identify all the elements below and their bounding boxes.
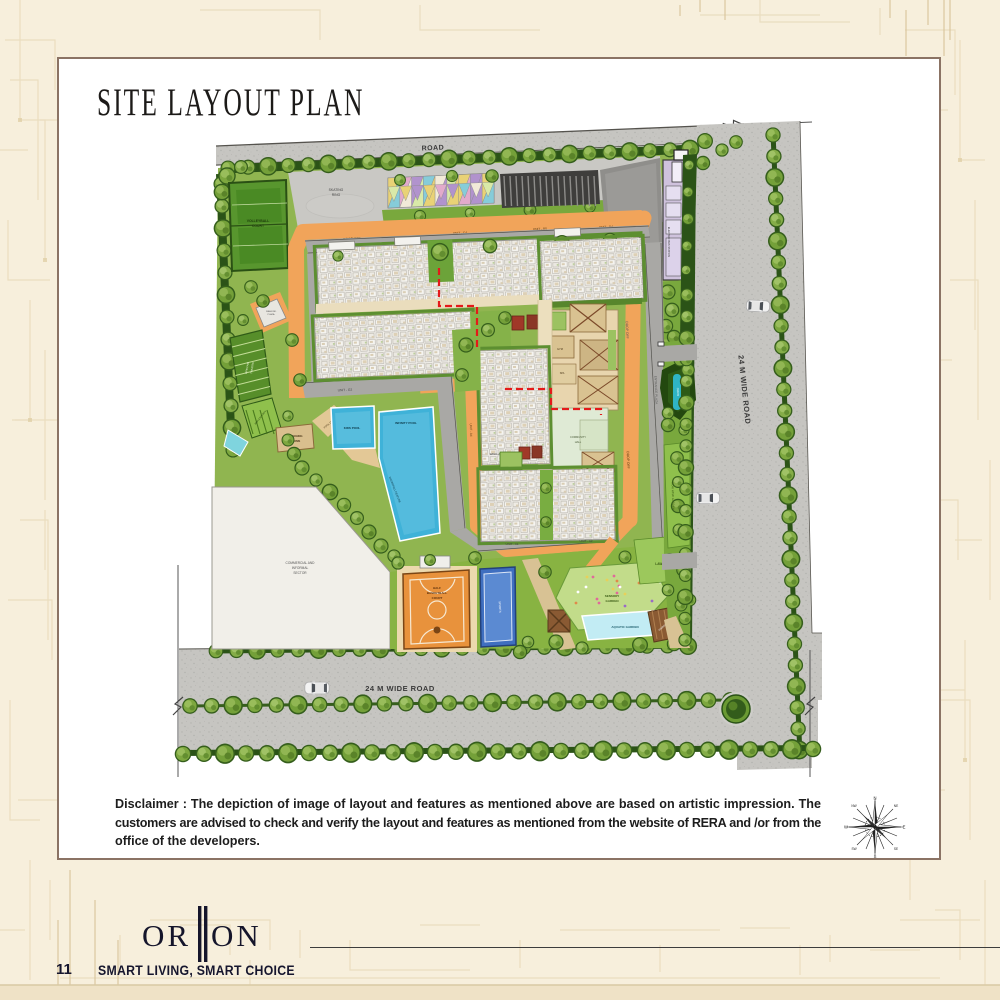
svg-text:KIDS POOL: KIDS POOL (344, 426, 361, 430)
svg-text:RING: RING (332, 193, 341, 197)
svg-text:HALF: HALF (433, 586, 441, 590)
svg-text:SPA: SPA (560, 372, 565, 375)
svg-text:PLAZA: PLAZA (268, 313, 275, 316)
svg-text:WING-A: WING-A (490, 452, 501, 456)
svg-text:DIAMOND: DIAMOND (266, 310, 277, 313)
svg-text:COMMERCIAL AND: COMMERCIAL AND (286, 561, 316, 565)
svg-text:NW: NW (851, 804, 856, 808)
svg-text:SPORTS: SPORTS (498, 601, 502, 613)
svg-text:ELECTRIC BUS STATION: ELECTRIC BUS STATION (667, 227, 671, 258)
svg-text:UNIT - A4: UNIT - A4 (469, 423, 473, 437)
svg-text:NE: NE (894, 804, 898, 808)
svg-text:AQUATIC GARDEN: AQUATIC GARDEN (611, 625, 638, 629)
svg-text:COMMUNITY: COMMUNITY (570, 435, 586, 439)
svg-text:SW: SW (851, 847, 856, 851)
svg-text:DROP OFF: DROP OFF (626, 451, 631, 469)
svg-text:SENSORY: SENSORY (605, 594, 620, 598)
svg-text:COURT: COURT (432, 596, 443, 600)
svg-text:HALL: HALL (575, 440, 582, 444)
svg-text:S: S (874, 854, 877, 858)
svg-text:INFORMAL: INFORMAL (292, 566, 309, 570)
svg-text:BASKETBALL: BASKETBALL (427, 591, 447, 595)
svg-text:UNIT - A2: UNIT - A2 (579, 539, 592, 543)
svg-text:INFINITY POOL: INFINITY POOL (395, 421, 417, 425)
svg-text:VOLLEYBALL: VOLLEYBALL (247, 219, 270, 223)
svg-text:DROP OFF: DROP OFF (625, 321, 630, 339)
svg-text:UNIT - A1: UNIT - A1 (505, 542, 518, 546)
svg-text:ON: ON (211, 918, 260, 953)
svg-text:SKATING: SKATING (329, 188, 344, 192)
svg-text:GARDEN: GARDEN (605, 599, 618, 603)
svg-text:24 M WIDE ROAD: 24 M WIDE ROAD (365, 684, 435, 693)
svg-text:UNIT - G2: UNIT - G2 (338, 388, 353, 393)
svg-text:ORION: ORION (676, 388, 680, 397)
svg-text:GYM: GYM (557, 347, 563, 351)
svg-text:W: W (844, 825, 848, 830)
svg-text:E: E (903, 825, 906, 830)
svg-text:SE: SE (894, 847, 898, 851)
svg-text:N: N (873, 796, 876, 801)
svg-text:ROAD: ROAD (421, 145, 444, 153)
svg-text:SECTOR: SECTOR (293, 571, 307, 575)
svg-text:COURT: COURT (252, 224, 265, 228)
svg-text:OR: OR (142, 918, 191, 953)
